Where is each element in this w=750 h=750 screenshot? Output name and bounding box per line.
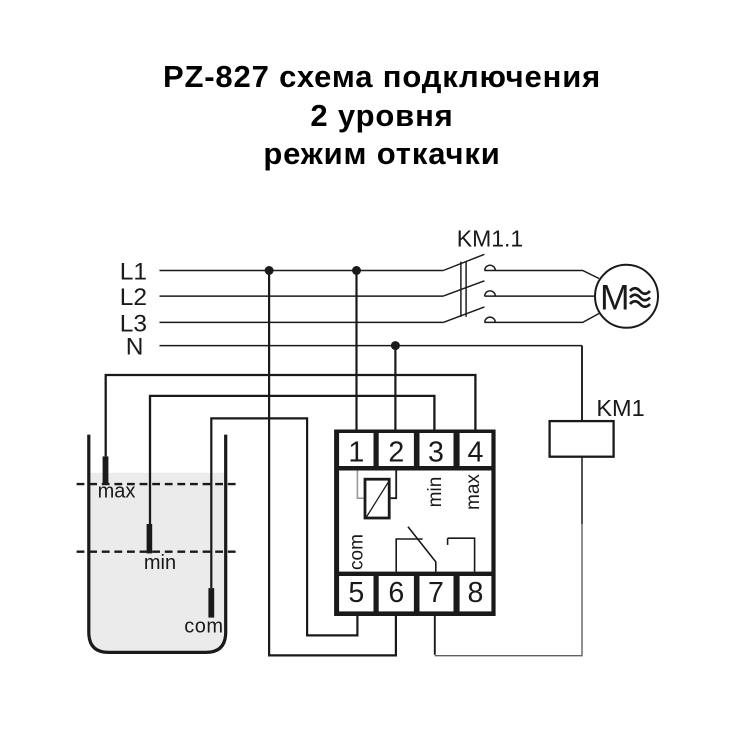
svg-text:M: M	[600, 278, 630, 318]
svg-text:6: 6	[388, 577, 404, 609]
svg-text:2: 2	[388, 436, 404, 468]
svg-text:N: N	[126, 334, 144, 361]
svg-text:L2: L2	[120, 284, 147, 311]
svg-text:8: 8	[468, 577, 484, 609]
svg-text:3: 3	[428, 436, 444, 468]
svg-text:min: min	[144, 552, 176, 574]
svg-text:1: 1	[348, 436, 364, 468]
svg-text:L1: L1	[120, 259, 147, 286]
svg-text:4: 4	[468, 436, 484, 468]
svg-text:7: 7	[428, 577, 444, 609]
svg-text:max: max	[98, 481, 136, 503]
svg-text:max: max	[463, 474, 484, 510]
svg-text:min: min	[425, 477, 446, 508]
svg-text:5: 5	[348, 577, 364, 609]
svg-text:KM1.1: KM1.1	[457, 226, 523, 252]
svg-text:KM1: KM1	[596, 395, 644, 421]
svg-text:com: com	[184, 615, 223, 637]
svg-text:com: com	[346, 534, 367, 570]
